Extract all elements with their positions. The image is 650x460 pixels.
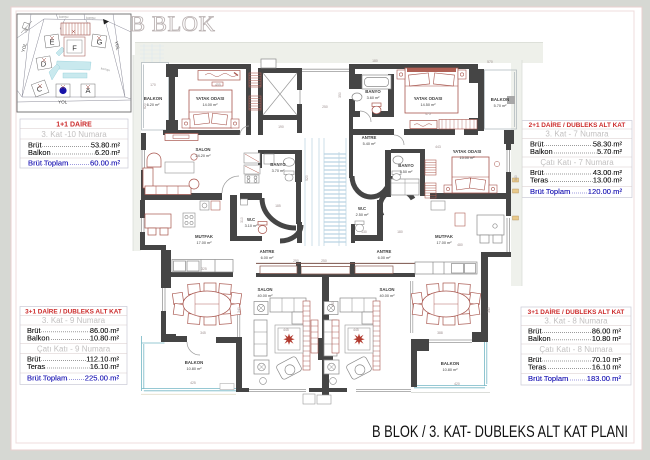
svg-text:180: 180 <box>397 230 403 234</box>
svg-text:3.50 m²: 3.50 m² <box>400 170 414 174</box>
svg-text:13.00 m²: 13.00 m² <box>593 175 623 184</box>
svg-text:180: 180 <box>372 59 378 63</box>
svg-text:BANYO: BANYO <box>365 89 381 94</box>
svg-text:15.00 m²: 15.00 m² <box>460 156 476 160</box>
svg-text:W.C: W.C <box>247 217 255 222</box>
svg-text:ANTRE: ANTRE <box>377 249 392 254</box>
svg-text:10.80 m²: 10.80 m² <box>90 333 120 342</box>
svg-text:3.10 m²: 3.10 m² <box>245 224 259 228</box>
svg-text:BALKON: BALKON <box>441 361 459 366</box>
svg-text:Brüt Toplam: Brüt Toplam <box>528 374 568 383</box>
svg-text:Balkon: Balkon <box>28 148 51 157</box>
svg-text:425: 425 <box>190 381 196 385</box>
svg-text:6.20 m²: 6.20 m² <box>147 103 161 107</box>
svg-text:2.50 m²: 2.50 m² <box>356 213 370 217</box>
svg-text:SALON: SALON <box>195 147 210 152</box>
svg-text:3+1 DAİRE / DUBLEKS ALT KAT: 3+1 DAİRE / DUBLEKS ALT KAT <box>528 307 625 316</box>
svg-text:520: 520 <box>305 175 309 181</box>
svg-text:24.20 m²: 24.20 m² <box>196 154 212 158</box>
svg-text:350: 350 <box>338 92 342 98</box>
svg-text:40.00 m²: 40.00 m² <box>380 294 396 298</box>
svg-text:17.00 m²: 17.00 m² <box>197 241 213 245</box>
svg-text:BALKON: BALKON <box>185 360 203 365</box>
svg-text:B BLOK: B BLOK <box>130 11 216 36</box>
svg-text:Balkon: Balkon <box>27 333 50 342</box>
svg-text:D: D <box>41 60 47 69</box>
svg-text:5.40 m²: 5.40 m² <box>363 142 377 146</box>
svg-text:480: 480 <box>457 243 463 247</box>
svg-text:388: 388 <box>437 331 443 335</box>
svg-text:190: 190 <box>278 125 284 129</box>
svg-text:3. Kat -10 Numara: 3. Kat -10 Numara <box>41 130 107 139</box>
svg-text:BANYO: BANYO <box>270 162 286 167</box>
svg-text:290: 290 <box>293 259 299 263</box>
svg-text:1+1 DAİRE: 1+1 DAİRE <box>56 121 92 129</box>
svg-text:3. Kat - 8 Numara: 3. Kat - 8 Numara <box>544 316 608 325</box>
svg-text:Teras: Teras <box>27 362 45 371</box>
svg-text:445: 445 <box>283 328 289 332</box>
svg-text:14.00 m²: 14.00 m² <box>203 103 219 107</box>
svg-text:komşu: komşu <box>59 15 69 19</box>
svg-text:10.80 m²: 10.80 m² <box>592 334 622 343</box>
svg-text:Çatı Katı - 9 Numara: Çatı Katı - 9 Numara <box>37 344 111 353</box>
svg-text:5.70 m²: 5.70 m² <box>597 147 623 156</box>
svg-text:185: 185 <box>275 204 281 208</box>
svg-text:120.00 m²: 120.00 m² <box>588 187 623 196</box>
svg-text:3.70 m²: 3.70 m² <box>272 169 286 173</box>
svg-text:3. Kat - 7 Numara: 3. Kat - 7 Numara <box>545 129 609 138</box>
svg-text:MUTFAK: MUTFAK <box>435 234 454 239</box>
svg-text:YATAK ODASI: YATAK ODASI <box>196 96 225 101</box>
svg-text:16.10 m²: 16.10 m² <box>592 363 622 372</box>
svg-text:325: 325 <box>201 267 207 271</box>
svg-text:Çatı Katı - 8 Numara: Çatı Katı - 8 Numara <box>539 345 613 354</box>
svg-text:2+1 DAİRE / DUBLEKS ALT KAT: 2+1 DAİRE / DUBLEKS ALT KAT <box>529 120 626 129</box>
svg-text:Balkon: Balkon <box>528 334 551 343</box>
svg-text:ANTRE: ANTRE <box>260 249 275 254</box>
svg-text:Balkon: Balkon <box>530 147 553 156</box>
svg-text:F: F <box>72 44 77 53</box>
svg-text:YATAK ODASI: YATAK ODASI <box>453 149 482 154</box>
svg-text:3+1 DAİRE / DUBLEKS ALT KAT: 3+1 DAİRE / DUBLEKS ALT KAT <box>25 306 122 315</box>
svg-text:6.00 m²: 6.00 m² <box>378 256 392 260</box>
svg-text:16.10 m²: 16.10 m² <box>90 362 120 371</box>
svg-text:445: 445 <box>353 328 359 332</box>
svg-text:BALKON: BALKON <box>144 96 162 101</box>
svg-text:komşu: komşu <box>86 16 96 20</box>
svg-text:455: 455 <box>215 83 221 87</box>
svg-text:E: E <box>49 38 54 47</box>
svg-text:Teras: Teras <box>530 175 548 184</box>
svg-text:W.C: W.C <box>358 206 366 211</box>
svg-text:5.70 m²: 5.70 m² <box>494 104 508 108</box>
svg-text:10.80 m²: 10.80 m² <box>443 368 459 372</box>
svg-text:475: 475 <box>425 112 431 116</box>
svg-text:ANTRE: ANTRE <box>362 135 377 140</box>
svg-text:250: 250 <box>321 259 327 263</box>
svg-text:14.50 m²: 14.50 m² <box>421 103 437 107</box>
svg-text:6.20 m²: 6.20 m² <box>95 148 121 157</box>
svg-text:345: 345 <box>200 331 206 335</box>
svg-text:630: 630 <box>331 301 335 307</box>
svg-text:Brüt Toplam: Brüt Toplam <box>27 374 67 383</box>
svg-text:540: 540 <box>514 175 518 181</box>
svg-text:620: 620 <box>143 103 147 109</box>
svg-text:YATAK ODASI: YATAK ODASI <box>414 96 443 101</box>
svg-text:Teras: Teras <box>528 363 546 372</box>
svg-text:250: 250 <box>322 105 328 109</box>
svg-text:3. Kat - 9 Numara: 3. Kat - 9 Numara <box>42 316 106 325</box>
svg-text:340: 340 <box>487 307 491 313</box>
svg-text:3.60 m²: 3.60 m² <box>367 96 381 100</box>
svg-text:SALON: SALON <box>257 287 272 292</box>
svg-text:225.00 m²: 225.00 m² <box>85 374 120 383</box>
svg-text:SALON: SALON <box>379 287 394 292</box>
svg-text:60.00 m²: 60.00 m² <box>90 158 120 167</box>
svg-text:B BLOK / 3. KAT- DUBLEKS ALT K: B BLOK / 3. KAT- DUBLEKS ALT KAT PLANI <box>372 422 628 441</box>
svg-text:YOL: YOL <box>58 100 68 105</box>
svg-text:Çatı Katı - 7 Numara: Çatı Katı - 7 Numara <box>540 158 614 167</box>
svg-text:10.80 m²: 10.80 m² <box>187 367 203 371</box>
svg-text:170: 170 <box>150 83 156 87</box>
svg-text:BANYO: BANYO <box>398 163 414 168</box>
svg-text:BALKON: BALKON <box>491 97 509 102</box>
svg-text:340: 340 <box>237 307 241 313</box>
svg-text:Brüt Toplam: Brüt Toplam <box>530 187 570 196</box>
svg-text:6.00 m²: 6.00 m² <box>261 256 275 260</box>
svg-text:420: 420 <box>454 382 460 386</box>
svg-text:40.00 m²: 40.00 m² <box>258 294 274 298</box>
svg-text:183.00 m²: 183.00 m² <box>587 374 622 383</box>
svg-text:Brüt Toplam: Brüt Toplam <box>28 158 68 167</box>
svg-text:130: 130 <box>361 230 367 234</box>
svg-text:443: 443 <box>435 145 441 149</box>
svg-text:310: 310 <box>240 217 244 223</box>
svg-text:17.00 m²: 17.00 m² <box>437 241 453 245</box>
svg-text:MUTFAK: MUTFAK <box>195 234 214 239</box>
svg-text:570: 570 <box>487 60 493 64</box>
